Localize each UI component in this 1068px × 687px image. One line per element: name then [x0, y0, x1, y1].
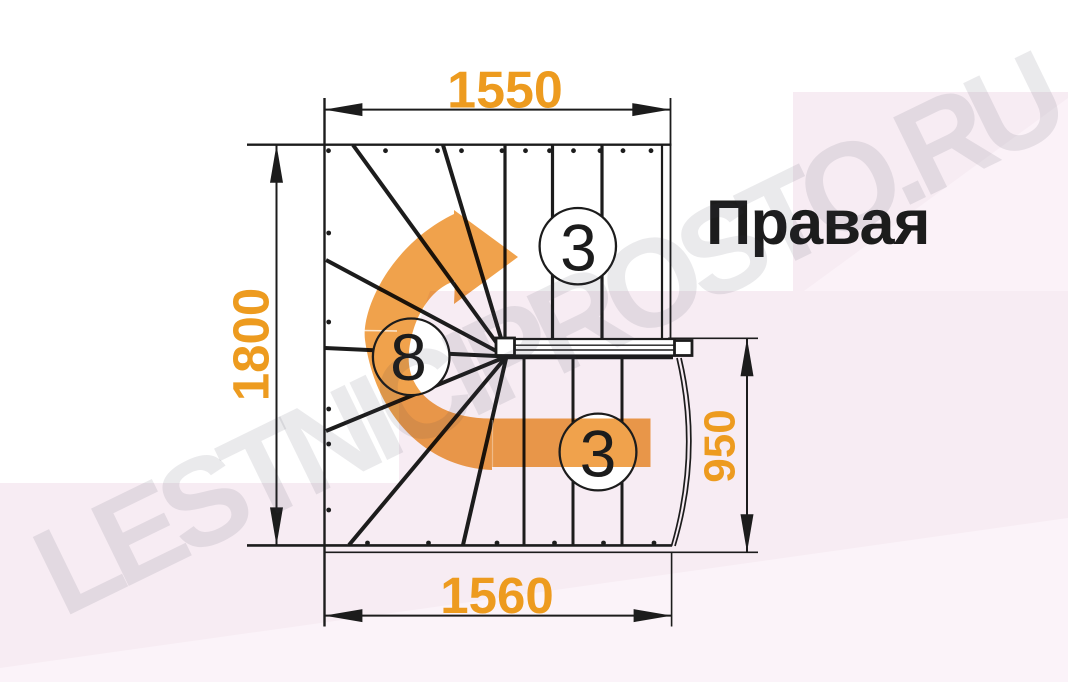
svg-text:3: 3	[580, 417, 617, 491]
svg-text:1560: 1560	[440, 567, 553, 624]
svg-text:1800: 1800	[223, 288, 280, 401]
svg-text:1550: 1550	[447, 62, 563, 120]
svg-text:950: 950	[696, 409, 745, 482]
